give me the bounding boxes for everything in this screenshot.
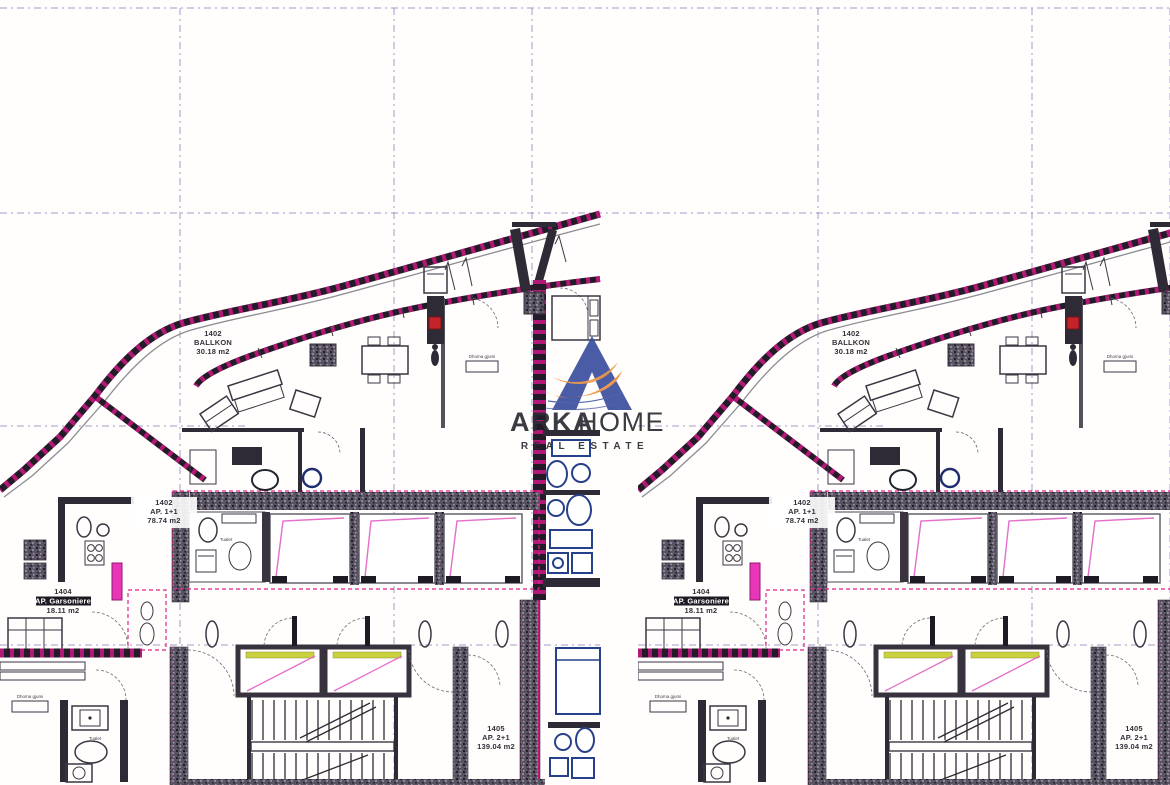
brand-text-home: HOME xyxy=(578,407,665,437)
brand-tagline: REAL ESTATE xyxy=(521,441,649,452)
floorplan-canvas: 1402 BALLKON 30.18 m2 1402 AP. 1+1 78.74… xyxy=(0,0,1170,785)
floorplan-page: 1402 BALLKON 30.18 m2 1402 AP. 1+1 78.74… xyxy=(0,0,1170,785)
